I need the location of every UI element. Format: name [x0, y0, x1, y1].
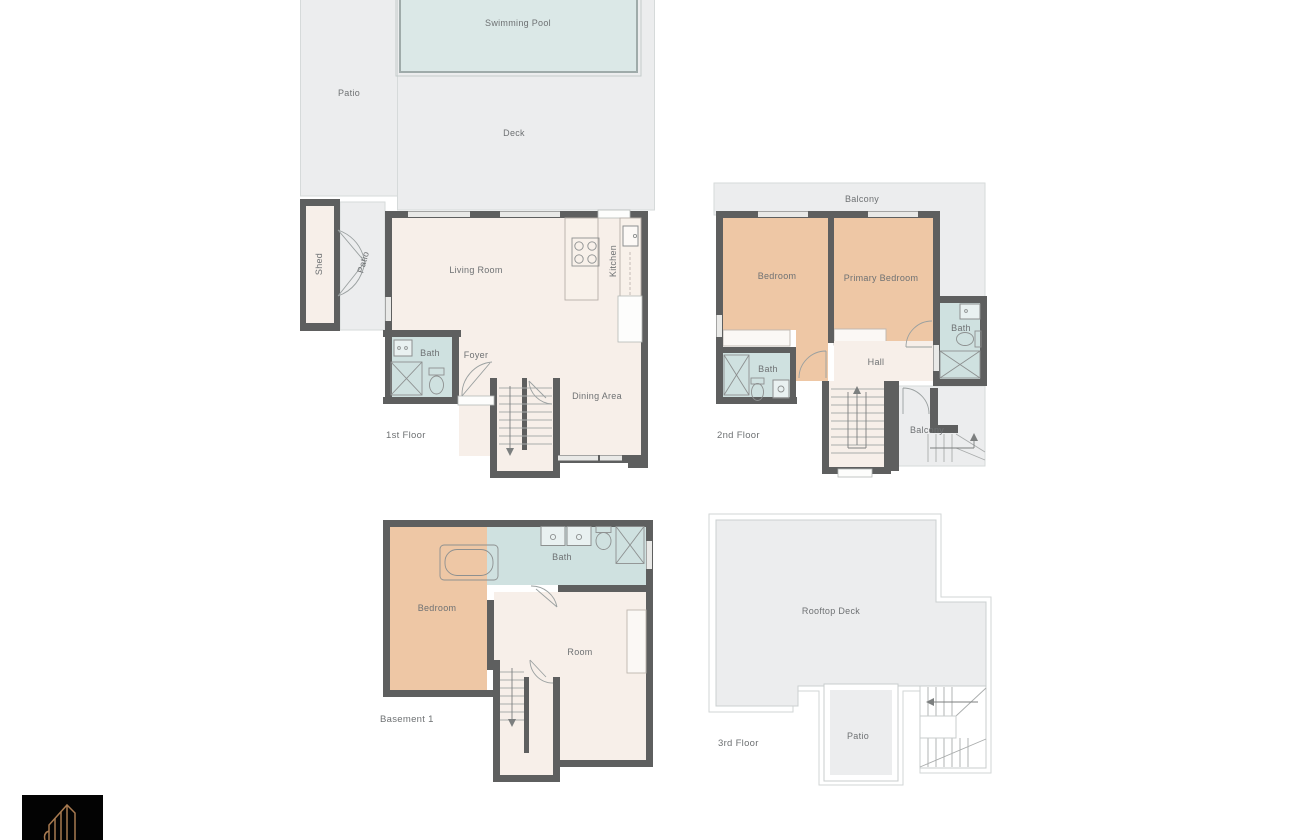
kitchen-island: [565, 218, 598, 300]
label-rear-balcony: Balcony: [910, 425, 944, 435]
wall: [493, 660, 500, 782]
label-patio: Patio: [338, 88, 360, 98]
wall: [452, 337, 459, 401]
bedroom-entry-strip: [796, 330, 828, 381]
label-deck: Deck: [503, 128, 525, 138]
window: [758, 212, 808, 218]
room-patio-outdoor: [301, 0, 398, 196]
window: [558, 456, 598, 461]
label-bath-basement: Bath: [552, 552, 572, 562]
sliding-door: [598, 210, 630, 218]
wall: [822, 381, 829, 474]
label-room: Room: [567, 647, 592, 657]
floor-2-plan: Balcony Bedroom Primary Bedroom Bath Bat…: [714, 183, 987, 477]
sink-icon: [394, 340, 412, 356]
stair-landing: [920, 716, 956, 738]
stair-divider-wall: [524, 677, 529, 753]
floor-name-3rd: 3rd Floor: [718, 738, 759, 749]
label-kitchen: Kitchen: [608, 245, 618, 277]
floor-name-basement: Basement 1: [380, 714, 434, 725]
floor-3-plan: Rooftop Deck Patio 3rd Floor: [709, 514, 991, 785]
floorplan-canvas: Swimming Pool Patio Deck Shed Patio Livi…: [0, 0, 1290, 840]
sink-icon: [541, 527, 565, 546]
label-balcony: Balcony: [845, 194, 879, 204]
floorplan-page: Swimming Pool Patio Deck Shed Patio Livi…: [0, 0, 1290, 840]
label-shed: Shed: [314, 253, 324, 275]
label-bath-right: Bath: [951, 323, 971, 333]
label-swimming-pool: Swimming Pool: [485, 18, 551, 28]
window: [408, 212, 470, 218]
wall: [933, 379, 987, 386]
label-bath-left: Bath: [758, 364, 778, 374]
wall: [790, 347, 796, 404]
stair-divider-wall: [522, 378, 527, 450]
wall: [933, 296, 987, 303]
kitchen-cabinet: [618, 296, 642, 342]
label-dining-area: Dining Area: [572, 391, 622, 401]
label-patio-third: Patio: [847, 731, 869, 741]
room-living-room: [392, 218, 641, 334]
wall: [558, 585, 653, 592]
label-bedroom-basement: Bedroom: [418, 603, 457, 613]
wall: [383, 397, 461, 404]
entry-door-sill: [458, 396, 494, 405]
logo-background: [22, 795, 103, 840]
wall: [716, 211, 723, 404]
wall: [383, 330, 461, 337]
wall: [493, 775, 560, 782]
wall: [383, 690, 495, 697]
window: [647, 541, 653, 569]
label-hall: Hall: [868, 357, 885, 367]
window: [868, 212, 918, 218]
sink-icon: [567, 527, 591, 546]
wall: [828, 211, 834, 343]
brand-logo: [22, 795, 103, 840]
wall: [716, 347, 796, 353]
label-primary-bedroom: Primary Bedroom: [844, 273, 919, 283]
wall: [884, 381, 891, 474]
window-sill: [838, 469, 872, 477]
wall: [891, 381, 899, 471]
wall: [490, 378, 497, 478]
closet: [627, 610, 646, 673]
floor-name-2nd: 2nd Floor: [717, 430, 760, 441]
label-living-room: Living Room: [449, 265, 502, 275]
window: [600, 456, 622, 461]
basement-plan: Bedroom Bath Room Basement 1: [380, 520, 653, 782]
kitchen-sink-icon: [623, 226, 638, 246]
sink-icon: [773, 380, 789, 398]
wall: [628, 455, 648, 468]
door-opening: [934, 345, 940, 371]
label-bath: Bath: [420, 348, 440, 358]
floor-name-1st: 1st Floor: [386, 430, 426, 441]
closet: [723, 330, 790, 346]
wall: [553, 760, 653, 767]
room-swimming-pool: [400, 0, 637, 72]
sink-icon: [960, 304, 980, 319]
label-foyer: Foyer: [464, 350, 489, 360]
wall: [553, 677, 560, 775]
wall: [490, 471, 560, 478]
wall: [383, 520, 653, 527]
floor-1-plan: Swimming Pool Patio Deck Shed Patio Livi…: [300, 0, 655, 478]
window: [717, 315, 723, 337]
label-bedroom: Bedroom: [758, 271, 797, 281]
window: [386, 297, 392, 321]
wall: [933, 211, 940, 303]
wall: [487, 600, 494, 670]
label-rooftop-deck: Rooftop Deck: [802, 606, 860, 616]
window: [500, 212, 560, 218]
wall: [383, 520, 390, 697]
